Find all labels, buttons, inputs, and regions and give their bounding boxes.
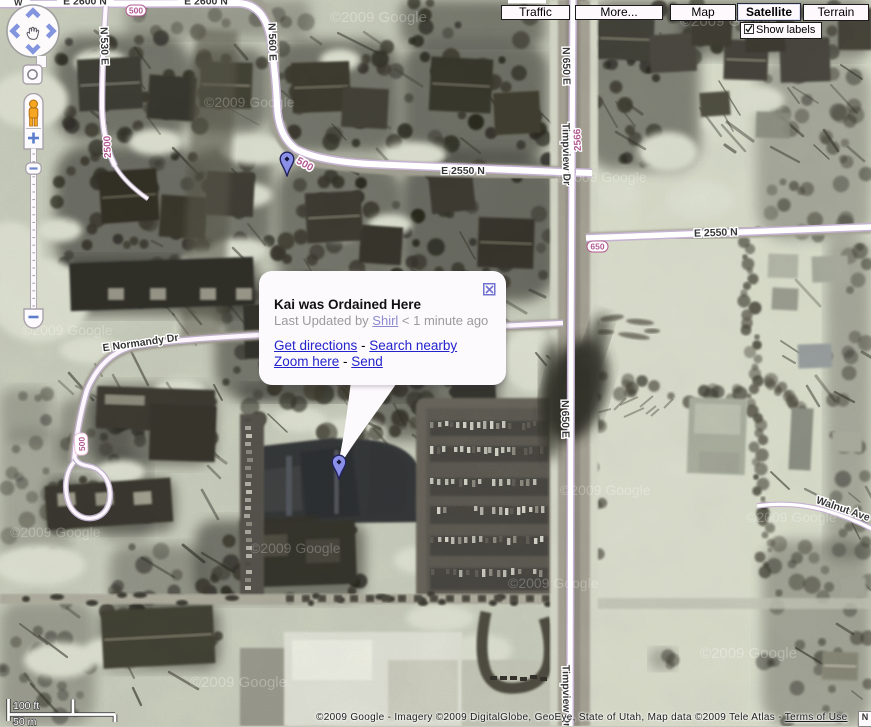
svg-text:50 m: 50 m — [13, 716, 37, 726]
svg-text:100 ft: 100 ft — [13, 700, 39, 712]
